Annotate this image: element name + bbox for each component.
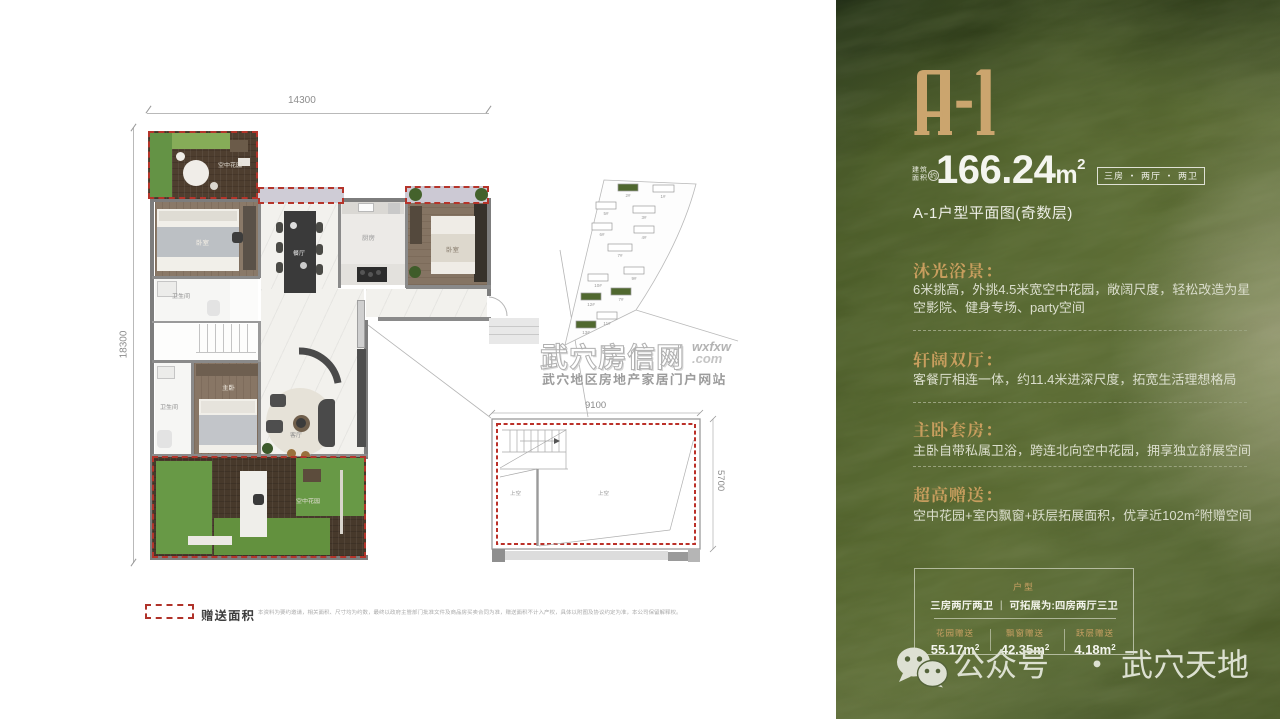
svg-text:10#: 10# [594,283,602,288]
svg-text:9#: 9# [631,276,637,281]
svg-text:上空: 上空 [510,489,522,497]
svg-text:13#: 13# [582,330,590,335]
svg-text:1#: 1# [660,194,666,199]
svg-text:9100: 9100 [585,400,606,411]
svg-text:6#: 6# [599,232,605,237]
svg-text:3#: 3# [641,215,647,220]
svg-text:7#: 7# [618,297,624,302]
svg-text:2#: 2# [625,193,631,198]
svg-text:7#: 7# [617,253,623,258]
svg-text:4#: 4# [641,235,647,240]
svg-text:5#: 5# [603,211,609,216]
svg-text:上空: 上空 [598,489,610,497]
svg-text:11#: 11# [603,321,611,326]
svg-text:5700: 5700 [715,470,726,491]
svg-text:12#: 12# [587,302,595,307]
